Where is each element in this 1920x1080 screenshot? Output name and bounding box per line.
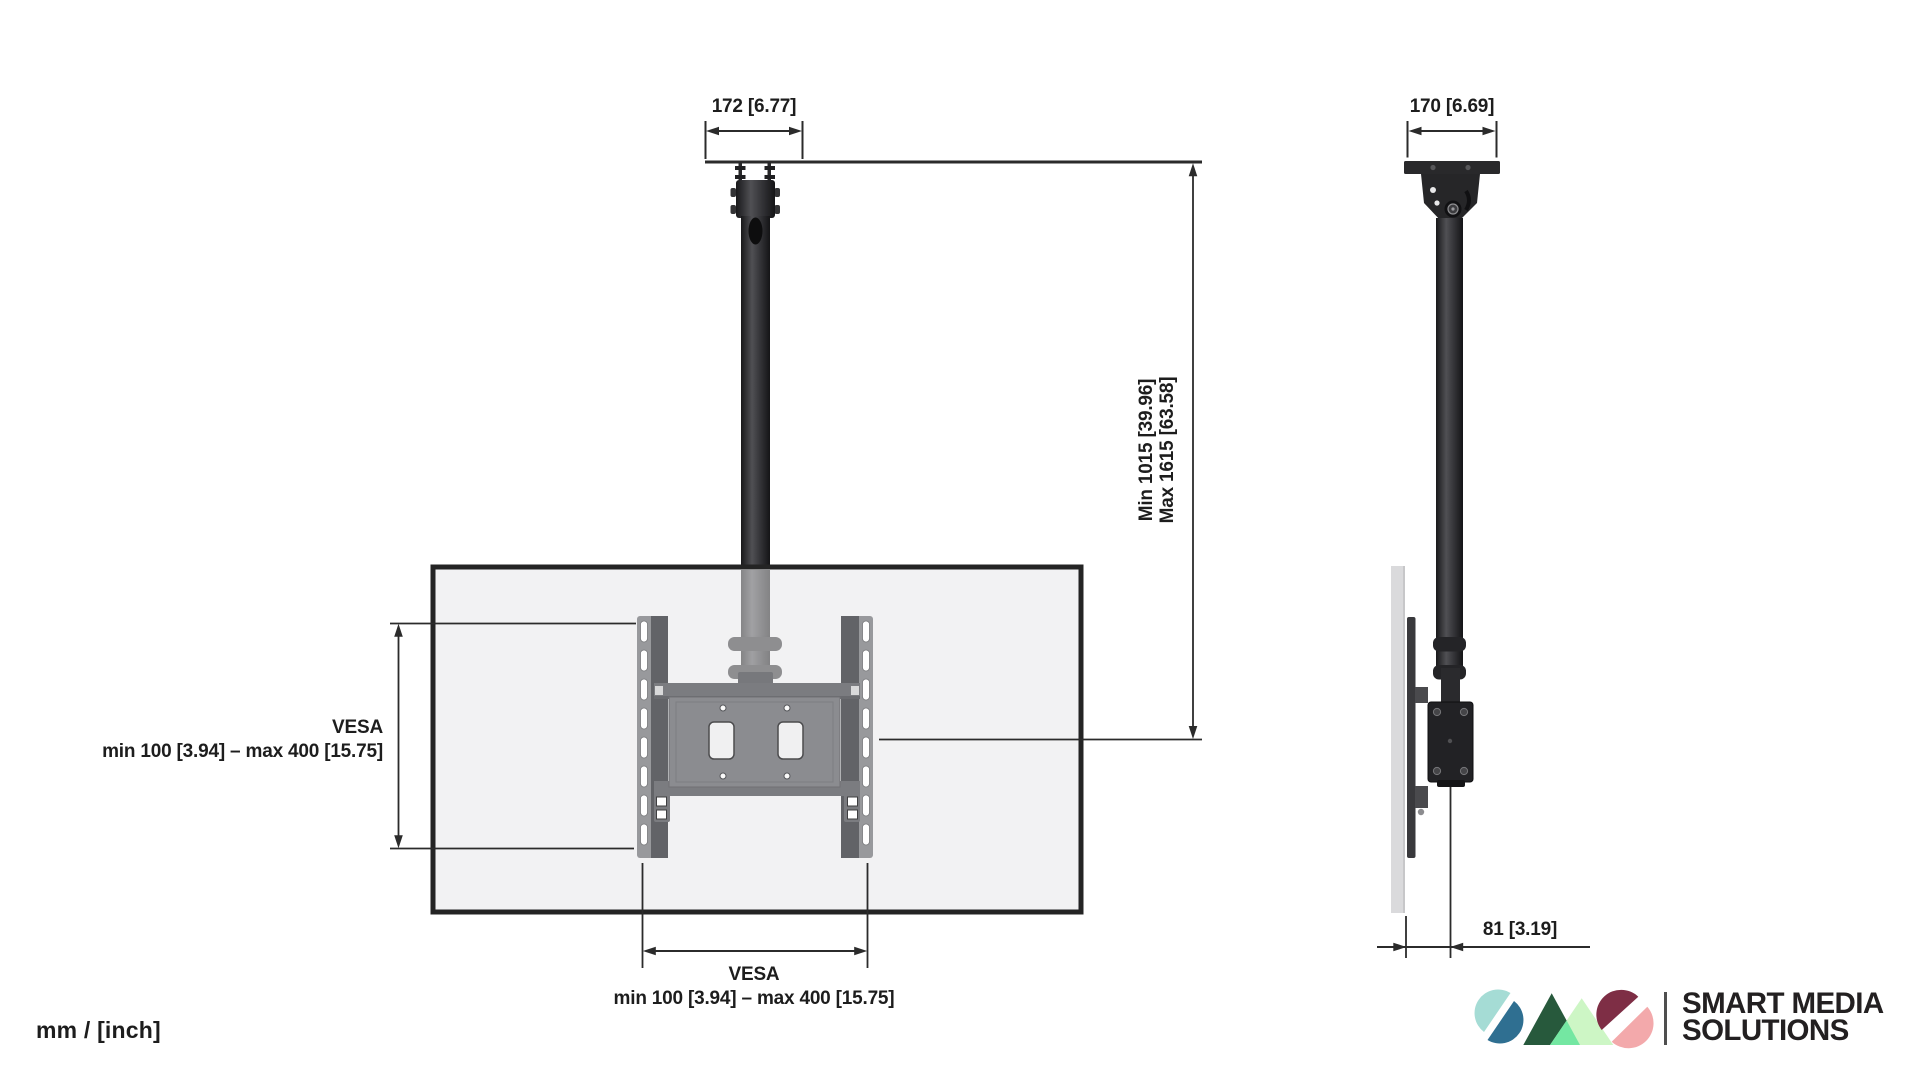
technical-drawing-canvas: 172 [6.77] 170 [6.69] Min 1015 [39.96] M… — [0, 0, 1920, 1080]
logo-line-2: SOLUTIONS — [1682, 1017, 1884, 1044]
ceiling-pole-front — [741, 216, 770, 568]
dim-top-width-front — [706, 121, 803, 159]
dim-label-height: Min 1015 [39.96] Max 1615 [63.58] — [1136, 240, 1178, 660]
rail-clamp-top-side — [1415, 687, 1428, 703]
vesa-range: min 100 [3.94] – max 400 [15.75] — [554, 987, 954, 1011]
vesa-label-vertical: VESA min 100 [3.94] – max 400 [15.75] — [83, 716, 383, 764]
dim-label-side-width: 170 [6.69] — [1352, 95, 1552, 118]
ceiling-pole-side — [1433, 218, 1466, 704]
ceiling-plate-side — [1404, 161, 1500, 174]
logo-line-1: SMART MEDIA — [1682, 990, 1884, 1017]
tilt-bracket-side — [1421, 174, 1480, 221]
side-view — [1377, 121, 1590, 958]
logo-divider — [1664, 992, 1667, 1045]
rail-clamp-bottom-side — [1415, 786, 1428, 808]
cable-slot — [749, 218, 763, 245]
mount-dimension-drawing — [0, 0, 1920, 1080]
units-label: mm / [inch] — [36, 1019, 161, 1042]
logo-wordmark: SMART MEDIA SOLUTIONS — [1682, 990, 1884, 1044]
vesa-title: VESA — [83, 716, 383, 740]
display-profile-side — [1391, 566, 1405, 913]
dim-label-front-width: 172 [6.77] — [654, 95, 854, 118]
dim-label-depth: 81 [3.19] — [1420, 918, 1620, 941]
vesa-rail-side — [1407, 617, 1416, 858]
vesa-label-horizontal: VESA min 100 [3.94] – max 400 [15.75] — [554, 963, 954, 1011]
dim-top-width-side — [1408, 121, 1497, 158]
smart-media-solutions-logo: SMART MEDIA SOLUTIONS — [1466, 980, 1906, 1056]
mount-head-side — [1428, 702, 1473, 787]
sms-logo-mark-icon — [1470, 980, 1670, 1055]
vesa-title: VESA — [554, 963, 954, 987]
dim-label-height-max: Max 1615 [63.58] — [1157, 240, 1178, 660]
hanger-bolts — [735, 162, 775, 182]
pole-top-cup — [731, 180, 781, 218]
vesa-range: min 100 [3.94] – max 400 [15.75] — [83, 740, 383, 764]
dim-label-height-min: Min 1015 [39.96] — [1136, 240, 1157, 660]
front-view — [390, 121, 1202, 968]
center-plate — [669, 697, 840, 787]
